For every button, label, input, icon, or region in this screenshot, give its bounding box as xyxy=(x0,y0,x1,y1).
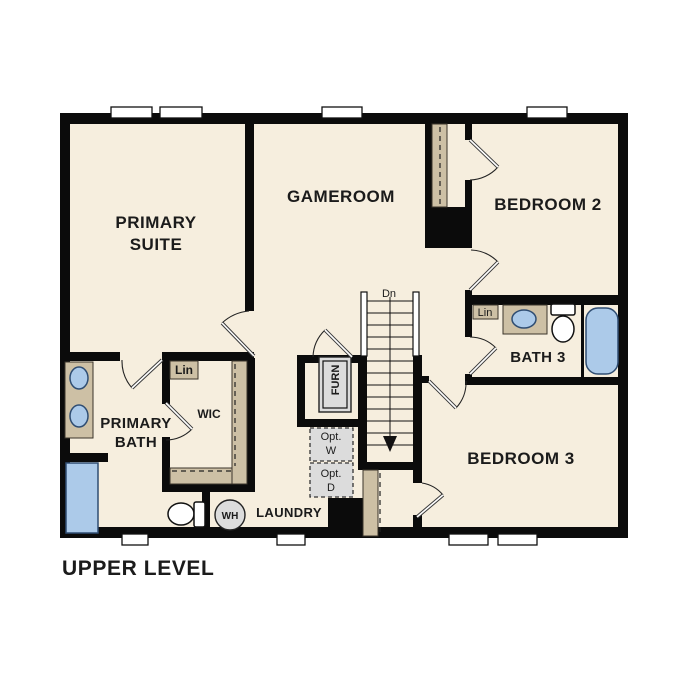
opt-dryer-label-line2: D xyxy=(327,482,335,494)
primary-sink-1 xyxy=(70,367,88,389)
primary-shower xyxy=(66,463,98,533)
window xyxy=(322,107,362,118)
primary-bath-label-line1: PRIMARY xyxy=(100,415,171,432)
window xyxy=(122,534,148,545)
wic-shelf-right xyxy=(232,361,247,484)
stair-rail-right xyxy=(413,292,419,356)
bath3-sink xyxy=(512,310,536,328)
furnace-label: FURN xyxy=(330,365,342,396)
bedroom3-label: BEDROOM 3 xyxy=(467,449,574,468)
bedroom3-closet-shelf xyxy=(363,470,378,536)
page-title: UPPER LEVEL xyxy=(62,557,214,580)
linen-bath3-label: Lin xyxy=(478,307,493,319)
primary-toilet-tank xyxy=(194,502,205,527)
floor-plan: PRIMARY SUITE GAMEROOM BEDROOM 2 BEDROOM… xyxy=(0,0,687,687)
window xyxy=(111,107,152,118)
bath3-tub xyxy=(586,308,618,374)
stairs-dn-label: Dn xyxy=(382,288,396,300)
gameroom-label: GAMEROOM xyxy=(287,187,395,206)
window xyxy=(449,534,488,545)
window xyxy=(277,534,305,545)
opt-dryer-label-line1: Opt. xyxy=(321,468,342,480)
laundry-label: LAUNDRY xyxy=(256,505,322,520)
bath3-toilet-tank xyxy=(551,304,575,315)
wic-label: WIC xyxy=(197,407,221,421)
bath3-label: BATH 3 xyxy=(510,349,565,366)
window xyxy=(527,107,567,118)
bedroom2-label: BEDROOM 2 xyxy=(494,195,601,214)
primary-bath-label-line2: BATH xyxy=(115,434,157,451)
opt-washer-label-line1: Opt. xyxy=(321,431,342,443)
opt-washer-label-line2: W xyxy=(326,445,337,457)
primary-suite-label-line1: PRIMARY xyxy=(115,213,196,232)
stair-rail-left xyxy=(361,292,367,356)
primary-suite-label-line2: SUITE xyxy=(130,235,183,254)
window xyxy=(498,534,537,545)
linen-primary-label: Lin xyxy=(175,363,193,377)
primary-sink-2 xyxy=(70,405,88,427)
window xyxy=(160,107,202,118)
floor-plan-drawing: PRIMARY SUITE GAMEROOM BEDROOM 2 BEDROOM… xyxy=(0,0,687,687)
bath3-toilet-bowl xyxy=(552,316,574,342)
primary-toilet-bowl xyxy=(168,503,194,525)
water-heater-label: WH xyxy=(222,511,239,522)
